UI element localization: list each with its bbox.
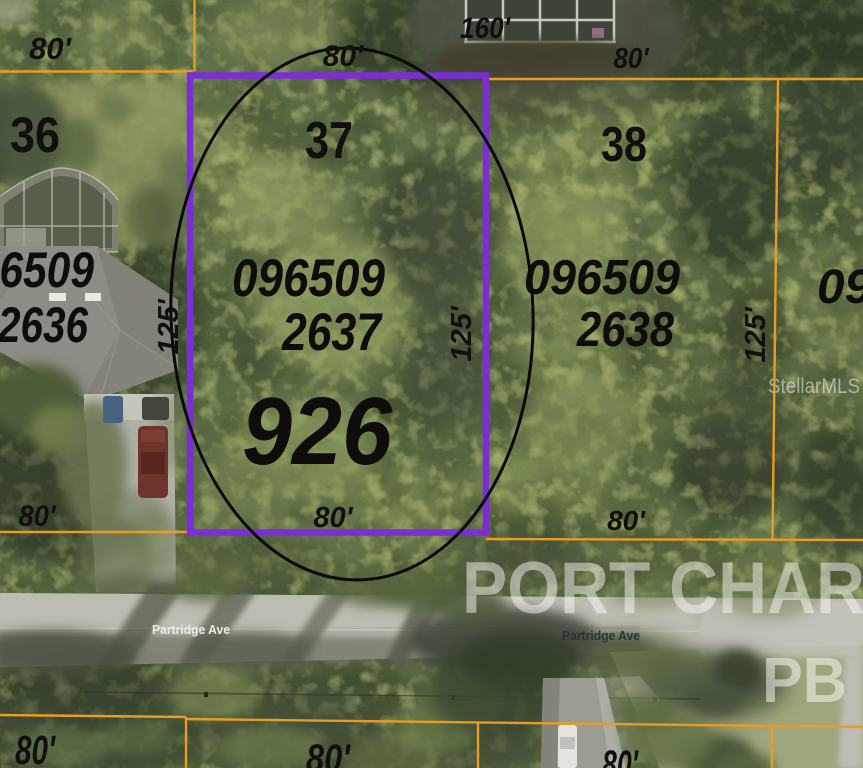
svg-text:80': 80': [306, 737, 351, 768]
svg-text:80': 80': [29, 31, 72, 66]
svg-text:0965: 0965: [817, 261, 863, 314]
svg-text:125': 125': [153, 298, 185, 354]
svg-text:80': 80': [19, 500, 57, 533]
svg-text:2638: 2638: [576, 303, 675, 357]
svg-text:125': 125': [740, 306, 772, 362]
svg-text:PB: PB: [762, 644, 847, 716]
svg-text:38: 38: [601, 118, 647, 172]
svg-text:160': 160': [460, 12, 511, 45]
svg-text:StellarMLS: StellarMLS: [768, 375, 860, 398]
svg-text:80': 80': [614, 43, 650, 75]
svg-text:37: 37: [305, 112, 353, 170]
svg-text:096509: 096509: [0, 242, 94, 298]
svg-text:Partridge Ave: Partridge Ave: [152, 623, 230, 637]
svg-text:80': 80': [607, 505, 646, 536]
svg-text:2637: 2637: [281, 303, 383, 362]
svg-text:2636: 2636: [0, 297, 89, 353]
svg-text:36: 36: [10, 107, 60, 163]
svg-text:80': 80': [15, 727, 56, 768]
svg-text:80': 80': [313, 502, 353, 534]
svg-text:096509: 096509: [232, 249, 385, 308]
svg-text:80': 80': [602, 743, 639, 768]
svg-text:926: 926: [242, 378, 393, 485]
svg-text:Partridge Ave: Partridge Ave: [562, 629, 640, 643]
svg-text:125': 125': [446, 305, 478, 361]
svg-text:80': 80': [323, 40, 364, 73]
svg-text:096509: 096509: [524, 251, 681, 305]
svg-text:PORT CHAR: PORT CHAR: [462, 548, 863, 629]
